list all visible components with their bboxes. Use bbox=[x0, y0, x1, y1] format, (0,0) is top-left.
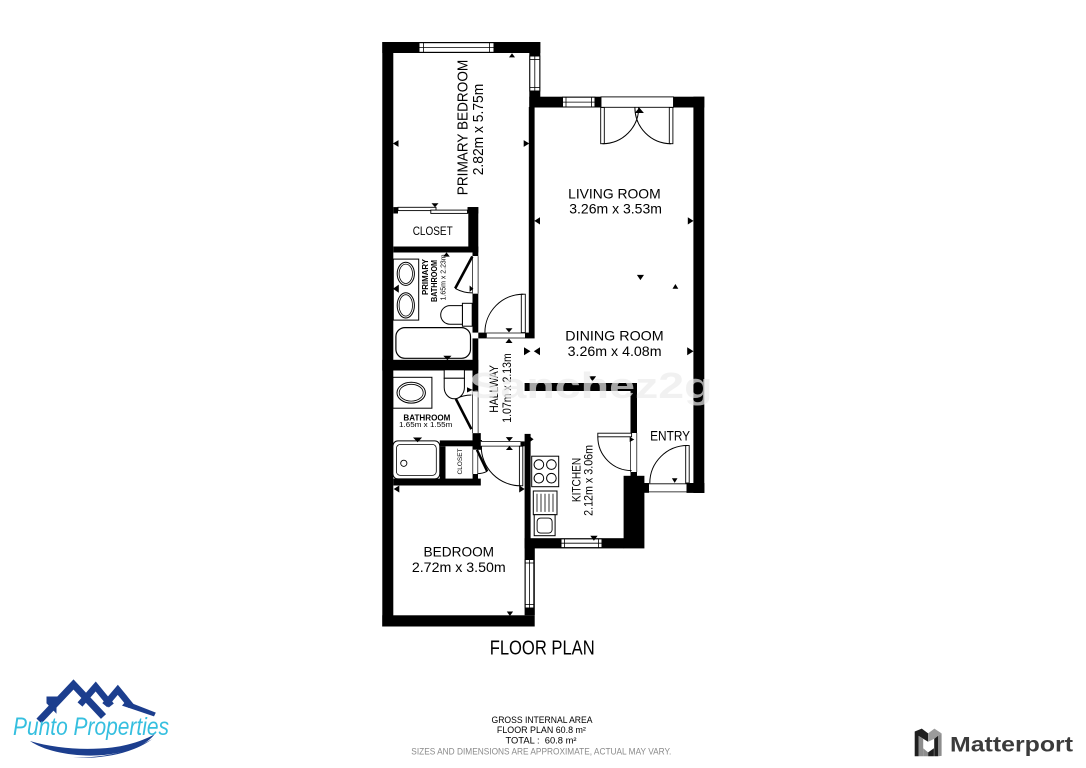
svg-text:1.65m x 2.23m: 1.65m x 2.23m bbox=[438, 254, 447, 300]
svg-text:ENTRY: ENTRY bbox=[650, 428, 690, 443]
svg-text:SIZES AND DIMENSIONS ARE APPRO: SIZES AND DIMENSIONS ARE APPROXIMATE, AC… bbox=[411, 746, 671, 756]
svg-text:Matterport: Matterport bbox=[950, 734, 1073, 757]
svg-text:Sanchez2g: Sanchez2g bbox=[470, 365, 713, 406]
svg-text:DINING ROOM: DINING ROOM bbox=[565, 328, 663, 344]
svg-text:KITCHEN: KITCHEN bbox=[572, 458, 584, 502]
svg-text:BEDROOM: BEDROOM bbox=[424, 543, 495, 559]
svg-text:Punto Properties: Punto Properties bbox=[13, 713, 169, 741]
svg-text:GROSS INTERNAL AREA: GROSS INTERNAL AREA bbox=[492, 715, 593, 725]
svg-text:1.65m x 1.55m: 1.65m x 1.55m bbox=[399, 420, 452, 429]
svg-text:CLOSET: CLOSET bbox=[457, 448, 464, 474]
svg-text:3.26m x 3.53m: 3.26m x 3.53m bbox=[569, 200, 662, 216]
svg-text:2.12m x 3.06m: 2.12m x 3.06m bbox=[583, 445, 595, 516]
svg-text:LIVING ROOM: LIVING ROOM bbox=[568, 185, 661, 201]
svg-text:PRIMARY BEDROOM: PRIMARY BEDROOM bbox=[454, 60, 471, 195]
svg-text:FLOOR PLAN 60.8 m²: FLOOR PLAN 60.8 m² bbox=[497, 725, 586, 735]
svg-text:FLOOR PLAN: FLOOR PLAN bbox=[490, 637, 595, 659]
svg-text:TOTAL : 60.8 m²: TOTAL : 60.8 m² bbox=[506, 735, 577, 745]
svg-text:3.26m x 4.08m: 3.26m x 4.08m bbox=[568, 343, 662, 359]
svg-text:2.82m x 5.75m: 2.82m x 5.75m bbox=[470, 84, 487, 176]
svg-text:2.72m x 3.50m: 2.72m x 3.50m bbox=[412, 559, 506, 575]
svg-text:CLOSET: CLOSET bbox=[413, 224, 454, 238]
